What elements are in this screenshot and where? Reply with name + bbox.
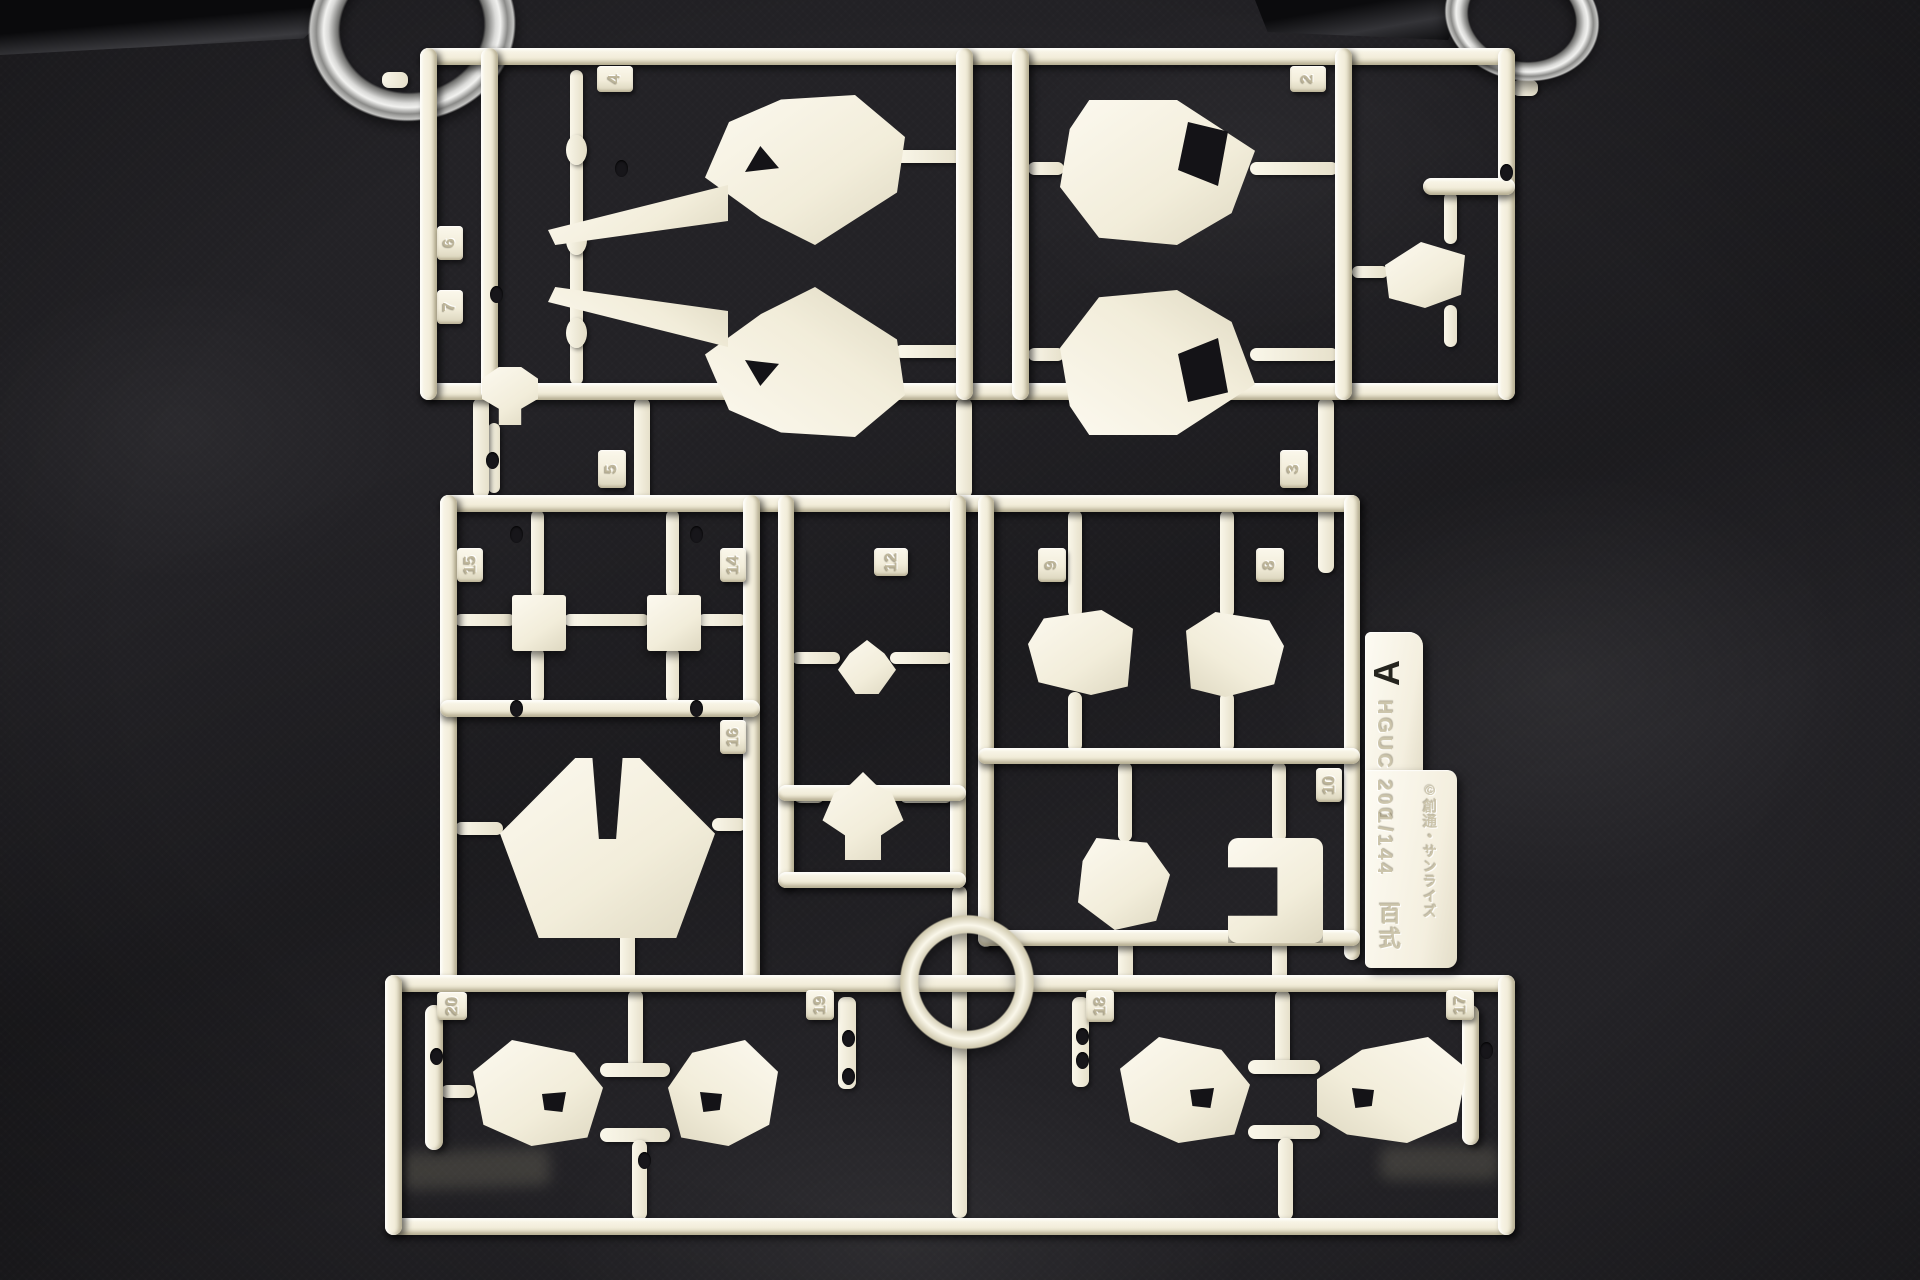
runner-stem [455, 822, 503, 835]
runner-rail [1498, 48, 1515, 400]
mold-hole [842, 1030, 855, 1047]
mold-hole [1076, 1052, 1089, 1069]
runner-stem [628, 990, 643, 1068]
mold-hole [1500, 164, 1513, 181]
runner-rail [1335, 48, 1352, 400]
mold-hole [690, 526, 703, 543]
tag-kit-name-text: 百式 [1376, 902, 1401, 952]
square-plate-part [647, 595, 701, 651]
runner-stem [1248, 1060, 1320, 1074]
runner-stem [895, 345, 965, 358]
runner-stem [712, 818, 746, 831]
molded-number: 4 [605, 74, 625, 83]
runner-rail [778, 872, 966, 888]
runner-stem [1250, 162, 1338, 175]
tag-copyright-text: ©創通・サンライズ [1422, 782, 1438, 919]
molded-number: 18 [1090, 997, 1110, 1016]
runner-stem [1444, 192, 1457, 244]
gate-number-tab-4: 4 [597, 66, 633, 92]
gate-number-tab-16: 16 [720, 720, 746, 754]
molded-number: 14 [723, 556, 743, 575]
runner-stem [890, 652, 952, 664]
shoulder-armor-part [1028, 610, 1133, 695]
runner-stem [1318, 398, 1334, 573]
gate-number-tab-17: 17 [1446, 990, 1474, 1020]
runner-stem [1272, 762, 1286, 842]
part-opening [1190, 1088, 1214, 1108]
runner-stem [1275, 990, 1290, 1066]
mold-hole [430, 1048, 443, 1065]
tag-kit-name: 百式 [1372, 902, 1404, 952]
runner-stem [1068, 692, 1082, 752]
square-plate-part [512, 595, 566, 651]
runner-rail [978, 748, 1360, 764]
runner-stem [441, 1085, 475, 1098]
runner-stem [1220, 510, 1234, 618]
tag-kit-code-text: HGUC 200 [1373, 700, 1395, 822]
runner-stem [1352, 266, 1388, 278]
runner-rail [440, 495, 457, 987]
tag-kit-code: HGUC 200 [1372, 700, 1395, 822]
runner-stem [1248, 1125, 1320, 1139]
runner-rail [440, 495, 1360, 512]
ball-joint-part [566, 135, 587, 165]
molded-number: 9 [1042, 560, 1062, 569]
molded-number: 12 [881, 553, 901, 572]
molded-number: 2 [1298, 74, 1318, 83]
runner-rail [1344, 495, 1360, 960]
runner-stem [473, 398, 489, 498]
runner-rail [385, 975, 402, 1235]
runner-stem [1444, 305, 1457, 347]
mold-hole [490, 286, 503, 303]
runner-stem [600, 1063, 670, 1077]
runner-rail [978, 495, 994, 947]
plastic-reflection [1380, 1146, 1500, 1180]
gate-number-tab-12: 12 [874, 548, 908, 576]
gate-number-tab-7: 7 [437, 290, 463, 324]
tag-scale: 1/144 [1372, 812, 1395, 877]
runner-stem [531, 648, 544, 703]
molded-number: 10 [1319, 776, 1339, 795]
tag-copyright: ©創通・サンライズ [1420, 782, 1440, 919]
mold-hole [690, 700, 703, 717]
part-opening [542, 1092, 566, 1112]
mold-hole [486, 452, 499, 469]
runner-stem [1278, 1138, 1293, 1220]
runner-rail [950, 495, 966, 888]
molded-number: 5 [602, 464, 622, 473]
part-opening [1352, 1088, 1374, 1108]
runner-rail [420, 48, 437, 400]
gate-number-tab-14: 14 [720, 548, 746, 582]
molded-number: 15 [460, 556, 480, 575]
runner-stem [531, 510, 544, 598]
runner-letter: A [1366, 660, 1408, 686]
mold-hole [638, 1152, 651, 1169]
runner-stem [634, 398, 650, 510]
runner-stem [1028, 162, 1064, 175]
shoulder-armor-part [1186, 612, 1284, 697]
gate-number-tab-15: 15 [457, 548, 483, 582]
runner-stem [956, 398, 972, 498]
gate-number-tab-9: 9 [1038, 548, 1066, 582]
plastic-reflection [399, 1147, 550, 1190]
runner-rail [1012, 48, 1029, 400]
runner-rail [778, 495, 794, 888]
ball-joint-part [566, 318, 587, 348]
molded-number: 20 [442, 997, 462, 1016]
gate-number-tab-2: 2 [1290, 66, 1326, 92]
gate-number-tab-3: 3 [1280, 450, 1308, 488]
tag-scale-text: 1/144 [1373, 812, 1395, 877]
runner-stem [1250, 348, 1338, 361]
runner-stem [455, 614, 515, 626]
photo-of-model-kit-runner: A HGUC 200 1/144 百式 ©創通・サンライズ 4 2 6 7 5 … [0, 0, 1920, 1280]
mold-hole [1480, 1042, 1493, 1059]
gate-number-tab-10: 10 [1316, 768, 1342, 802]
runner-rail [425, 1005, 443, 1150]
circular-ring-part [892, 907, 1042, 1057]
runner-rail [481, 48, 498, 400]
runner-stem [792, 652, 840, 664]
molded-number: 17 [1450, 996, 1470, 1015]
runner-rail [1498, 975, 1515, 1235]
runner-stem [666, 648, 679, 703]
runner-stem [1220, 692, 1234, 752]
mold-hole [510, 700, 523, 717]
runner-stem [698, 614, 746, 626]
part-opening [700, 1092, 722, 1112]
gate-number-tab-6: 6 [437, 226, 463, 260]
gate-number-tab-5: 5 [598, 450, 626, 488]
mold-hole [1076, 1028, 1089, 1045]
runner-rail [385, 1218, 1515, 1235]
runner-stem [1068, 510, 1082, 618]
runner-stem [895, 150, 965, 163]
molded-number: 3 [1284, 464, 1304, 473]
molded-number: 6 [440, 238, 460, 247]
runner-stem [1118, 762, 1132, 842]
molded-number: 19 [810, 996, 830, 1015]
runner-stem [564, 614, 649, 626]
molded-number: 8 [1260, 560, 1280, 569]
runner-stem [1028, 348, 1064, 361]
molded-number: 7 [440, 302, 460, 311]
runner-rail [956, 48, 973, 400]
molded-number: 16 [723, 728, 743, 747]
mold-hole [842, 1068, 855, 1085]
runner-rail [1423, 178, 1515, 195]
mold-hole [615, 160, 628, 177]
gate-number-tab-19: 19 [806, 990, 834, 1020]
gate-number-tab-18: 18 [1086, 990, 1114, 1022]
runner-stem [666, 510, 679, 598]
mold-hole [510, 526, 523, 543]
runner-rail [440, 700, 760, 717]
gate-number-tab-20: 20 [437, 992, 467, 1020]
gate-number-tab-8: 8 [1256, 548, 1284, 582]
